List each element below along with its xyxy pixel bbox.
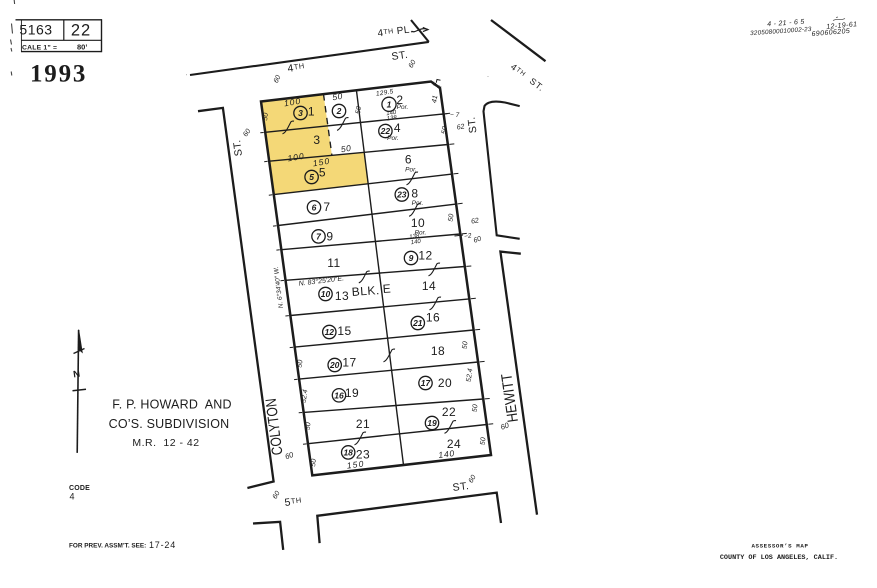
svg-text:5: 5 <box>309 172 314 182</box>
svg-text:− 7: − 7 <box>450 112 460 119</box>
svg-text:21: 21 <box>356 417 370 431</box>
svg-text:3: 3 <box>313 133 320 147</box>
svg-text:50: 50 <box>355 106 363 115</box>
svg-text:9: 9 <box>326 230 333 244</box>
svg-text:9: 9 <box>409 253 414 263</box>
svg-text:17: 17 <box>342 356 356 370</box>
svg-text:4: 4 <box>70 492 75 502</box>
svg-text:·: · <box>186 73 188 79</box>
svg-text:Por.: Por. <box>412 200 424 207</box>
svg-text:50: 50 <box>305 422 313 431</box>
svg-text:CO’S. SUBDIVISION: CO’S. SUBDIVISION <box>109 417 230 431</box>
svg-text:19: 19 <box>427 418 437 428</box>
svg-text:15: 15 <box>337 324 351 338</box>
svg-text:14: 14 <box>422 279 436 293</box>
svg-text:ASSESSOR’S MAP: ASSESSOR’S MAP <box>751 543 808 550</box>
svg-text:50: 50 <box>340 143 352 155</box>
svg-text:50: 50 <box>462 341 470 350</box>
svg-text:50: 50 <box>310 458 318 467</box>
svg-text:5163: 5163 <box>19 22 52 38</box>
svg-text:E: E <box>382 281 391 296</box>
svg-text:COUNTY OF LOS ANGELES, CALIF.: COUNTY OF LOS ANGELES, CALIF. <box>720 554 838 562</box>
svg-text:18: 18 <box>431 344 445 358</box>
svg-text:1: 1 <box>308 105 315 119</box>
svg-text:Por.: Por. <box>405 167 417 174</box>
svg-text:50: 50 <box>472 404 480 413</box>
svg-text:10: 10 <box>411 216 425 230</box>
svg-text:10: 10 <box>321 289 331 299</box>
svg-text:FOR PREV. ASSM’T. SEE:: FOR PREV. ASSM’T. SEE: <box>69 543 146 550</box>
svg-text:23: 23 <box>356 448 370 462</box>
svg-text:2: 2 <box>336 106 342 116</box>
svg-text:18: 18 <box>343 447 353 457</box>
svg-text:M.R. 12 - 42: M.R. 12 - 42 <box>132 437 199 449</box>
svg-text:5: 5 <box>319 166 326 180</box>
svg-text:1993: 1993 <box>30 61 87 88</box>
svg-text:6: 6 <box>312 202 317 212</box>
svg-text:·: · <box>487 74 489 80</box>
svg-text:12: 12 <box>325 327 335 337</box>
svg-text:20: 20 <box>329 360 340 370</box>
svg-text:50: 50 <box>332 91 344 103</box>
svg-text:ST.: ST. <box>466 116 480 134</box>
svg-text:22: 22 <box>442 405 456 419</box>
svg-text:Por.: Por. <box>397 104 409 111</box>
svg-text:22: 22 <box>71 22 91 40</box>
svg-text:CALE 1” =: CALE 1” = <box>22 44 57 51</box>
svg-text:19: 19 <box>345 386 359 400</box>
svg-text:11: 11 <box>327 256 340 270</box>
svg-text:BLK.: BLK. <box>351 283 380 299</box>
svg-text:7: 7 <box>323 200 330 214</box>
svg-text:50: 50 <box>441 126 449 135</box>
svg-text:8: 8 <box>411 187 418 201</box>
svg-text:50: 50 <box>448 213 456 222</box>
svg-text:50: 50 <box>480 437 488 446</box>
svg-text:21: 21 <box>412 318 423 328</box>
svg-text:80’: 80’ <box>77 43 87 52</box>
svg-text:20: 20 <box>438 376 452 390</box>
svg-text:62: 62 <box>471 217 480 225</box>
svg-text:3: 3 <box>298 108 303 118</box>
svg-text:12: 12 <box>418 249 432 263</box>
svg-text:ST.: ST. <box>391 49 409 63</box>
svg-text:24: 24 <box>447 437 461 451</box>
svg-text:17: 17 <box>421 378 432 388</box>
svg-text:F. P. HOWARD AND: F. P. HOWARD AND <box>112 398 231 412</box>
svg-text:Por.: Por. <box>387 135 399 142</box>
svg-text:16: 16 <box>426 311 440 325</box>
svg-text:ST.: ST. <box>452 480 470 494</box>
svg-text:1: 1 <box>387 99 392 109</box>
svg-text:50: 50 <box>262 112 270 121</box>
svg-text:16: 16 <box>334 390 344 400</box>
svg-text:50: 50 <box>297 359 305 368</box>
svg-text:17-24: 17-24 <box>149 540 176 550</box>
svg-text:ST.: ST. <box>231 139 245 157</box>
svg-text:62: 62 <box>456 123 465 131</box>
svg-text:Por.: Por. <box>415 230 427 237</box>
svg-text:13: 13 <box>335 289 349 303</box>
svg-text:4: 4 <box>394 121 401 135</box>
svg-text:41: 41 <box>431 95 439 104</box>
svg-text:23: 23 <box>396 190 407 200</box>
svg-text:6: 6 <box>405 153 412 167</box>
